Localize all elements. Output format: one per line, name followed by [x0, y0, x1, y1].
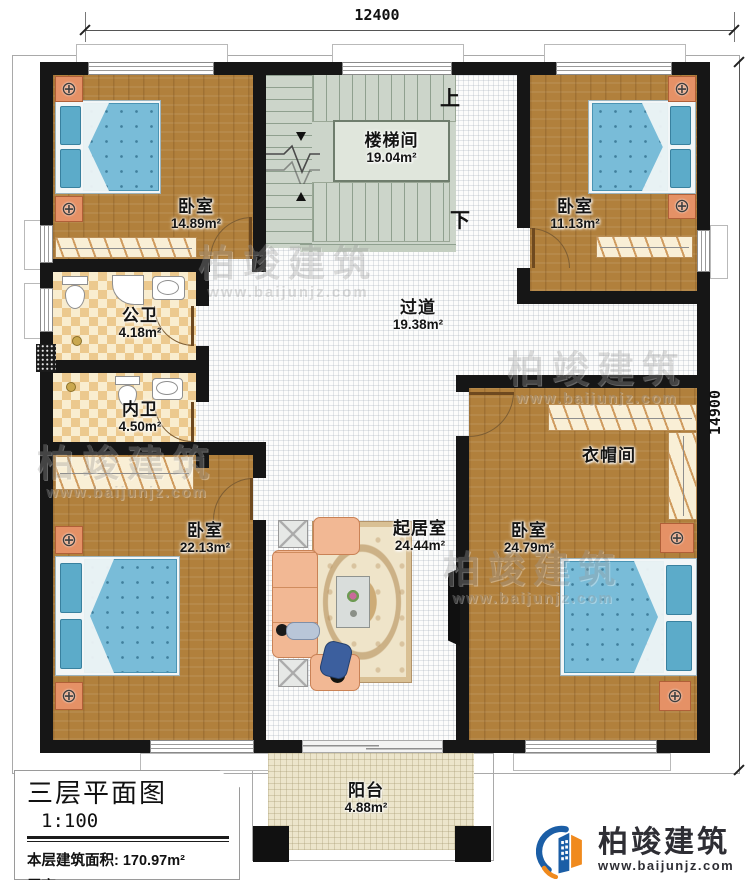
- door-leaf: [532, 228, 535, 268]
- pillow: [60, 149, 81, 188]
- room-label-cloakroom: 衣帽间: [559, 446, 659, 465]
- nightstand: ⊕: [55, 682, 83, 710]
- window-sill: [140, 753, 274, 771]
- wall-exterior-left: [40, 62, 53, 753]
- pillow: [670, 106, 691, 145]
- sink: [152, 276, 185, 300]
- window: [40, 288, 53, 332]
- door-leaf: [250, 478, 253, 520]
- stair-up-label: 上: [440, 82, 460, 111]
- door-leaf: [191, 402, 194, 442]
- lamp-icon: ⊕: [61, 80, 77, 99]
- stair-break-line: [258, 144, 320, 184]
- balcony-sliding-door: [302, 740, 443, 753]
- armchair: [313, 517, 360, 555]
- wall-interior: [252, 259, 266, 272]
- dimension-right-value: 14900: [706, 390, 724, 435]
- door-leaf: [249, 217, 252, 259]
- window: [88, 62, 214, 75]
- wall-interior: [196, 346, 209, 402]
- window-sill: [513, 753, 671, 771]
- room-label-balcony: 阳台 4.88m²: [316, 781, 416, 816]
- nightstand: ⊕: [55, 76, 83, 102]
- window-sill: [76, 44, 228, 64]
- stair-direction-arrow: [296, 192, 306, 201]
- title-underline: [27, 836, 229, 842]
- bed-bottom-right: [560, 558, 697, 676]
- lamp-icon: ⊕: [674, 80, 690, 99]
- wall-interior: [456, 375, 469, 392]
- window: [40, 225, 53, 263]
- room-label-bedroom-top-left: 卧室 14.89m²: [146, 197, 246, 232]
- person-lying: [276, 618, 320, 642]
- wardrobe: [596, 236, 693, 258]
- tv: [448, 568, 460, 646]
- stair-flight-lower: [312, 182, 450, 242]
- wall-interior: [253, 62, 266, 272]
- nightstand: ⊕: [659, 681, 691, 711]
- wall-interior: [40, 442, 266, 455]
- wardrobe: [55, 456, 194, 490]
- side-table: [278, 520, 308, 548]
- window: [525, 740, 657, 753]
- balcony-column: [253, 826, 289, 862]
- floor-drain: [66, 382, 76, 392]
- bed-top-right: [588, 100, 696, 194]
- window: [342, 62, 452, 75]
- room-label-stairwell: 楼梯间 19.04m²: [333, 131, 450, 166]
- wall-interior: [40, 259, 210, 272]
- cloakroom-rack: [548, 404, 697, 431]
- stair-rail: [300, 244, 456, 252]
- room-label-bedroom-top-right: 卧室 11.13m²: [525, 197, 625, 232]
- nightstand: ⊕: [55, 526, 83, 554]
- room-label-bath-public: 公卫 4.18m²: [90, 306, 190, 341]
- lamp-icon: ⊕: [61, 687, 77, 706]
- wardrobe: [55, 237, 197, 258]
- pillow: [60, 619, 82, 669]
- floor-drain: [72, 336, 82, 346]
- window-sill: [332, 44, 464, 64]
- bed-top-left: [55, 100, 161, 194]
- stair-direction-arrow: [296, 132, 306, 141]
- brand-name: 柏竣建筑: [598, 828, 734, 858]
- wall-interior: [40, 360, 209, 373]
- nightstand: ⊕: [668, 76, 696, 102]
- side-table: [278, 659, 308, 687]
- wall-interior: [456, 375, 710, 388]
- lamp-icon: ⊕: [669, 529, 685, 548]
- title-block: 三层平面图 1:100 本层建筑面积: 170.97m² 层高: 3.3m: [14, 770, 240, 880]
- door-leaf: [469, 392, 514, 395]
- room-label-living-room: 起居室 24.44m²: [370, 519, 470, 554]
- sink: [152, 378, 183, 400]
- brand-logo: 柏竣建筑 www.baijunjz.com: [536, 818, 740, 882]
- room-label-corridor: 过道 19.38m²: [368, 298, 468, 333]
- window: [556, 62, 672, 75]
- dimension-right-line: [739, 62, 740, 770]
- cloakroom-rack: [668, 432, 697, 520]
- door-leaf: [191, 306, 194, 346]
- pillow: [666, 565, 692, 615]
- balcony-column: [455, 826, 491, 862]
- room-label-bedroom-bottom-left: 卧室 22.13m²: [155, 521, 255, 556]
- person-sitting: [318, 640, 354, 690]
- room-label-bath-private: 内卫 4.50m²: [90, 400, 190, 435]
- floor-height-text: 层高: 3.3m: [27, 875, 229, 893]
- coffee-table: [336, 576, 370, 628]
- wall-interior: [253, 442, 266, 478]
- floor-area-text: 本层建筑面积: 170.97m²: [27, 849, 229, 870]
- pillow: [666, 621, 692, 671]
- lamp-icon: ⊕: [667, 687, 683, 706]
- flue-shaft: [36, 344, 56, 372]
- nightstand: ⊕: [55, 196, 83, 222]
- window-sill: [710, 225, 728, 279]
- wall-interior: [196, 259, 209, 306]
- wall-interior: [517, 291, 710, 304]
- window: [697, 230, 710, 272]
- window-sill: [544, 44, 686, 64]
- bed-bottom-left: [55, 556, 180, 676]
- lamp-icon: ⊕: [61, 531, 77, 550]
- pillow: [60, 106, 81, 145]
- window: [150, 740, 254, 753]
- toilet: [62, 276, 88, 310]
- brand-url: www.baijunjz.com: [598, 858, 734, 873]
- room-label-bedroom-bottom-right: 卧室 24.79m²: [479, 521, 579, 556]
- nightstand: ⊕: [668, 194, 696, 219]
- lamp-icon: ⊕: [61, 200, 77, 219]
- pillow: [60, 563, 82, 613]
- floor-plan-sheet: 12400 14900 ⊕ ⊕: [0, 0, 750, 893]
- plan-scale: 1:100: [41, 810, 98, 832]
- nightstand: ⊕: [660, 523, 694, 553]
- dimension-top-value: 12400: [342, 6, 412, 24]
- pillow: [670, 149, 691, 188]
- dimension-top-line: [85, 30, 735, 31]
- brand-logo-icon: [536, 821, 590, 879]
- plan-title: 三层平面图: [27, 773, 167, 810]
- lamp-icon: ⊕: [674, 197, 690, 216]
- stair-down-label: 下: [450, 204, 470, 233]
